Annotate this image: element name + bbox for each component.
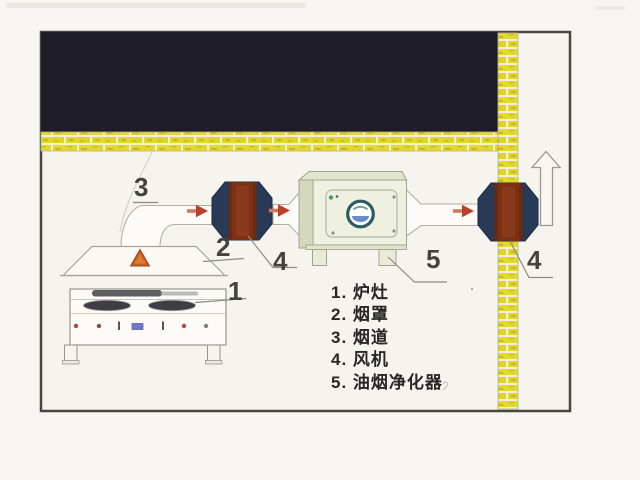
panel-screw <box>336 195 339 198</box>
purifier-base <box>306 245 407 250</box>
legend-item-hood: 2. 烟罩 <box>331 304 443 326</box>
stove-leg <box>65 345 78 362</box>
callout-number-duct: 3 <box>134 174 148 200</box>
brick-strip <box>41 132 498 151</box>
stove-burner <box>149 300 196 310</box>
callout-number-purifier: 5 <box>426 246 440 272</box>
callout-number-fan-right: 4 <box>527 247 541 273</box>
legend-item-fan: 4. 风机 <box>331 349 443 371</box>
scan-page: 3 2 1 4 4 5 1. 炉灶 2. 烟罩 3. 烟道 4. 风机 5. 油… <box>0 0 640 480</box>
stove-knob <box>74 324 78 328</box>
stove-knob <box>182 324 186 328</box>
stove-foot <box>206 361 223 365</box>
legend-item-stove: 1. 炉灶 <box>331 282 443 304</box>
stove-foot <box>63 361 80 365</box>
ceiling <box>41 32 498 132</box>
fan-core-light <box>502 187 515 237</box>
callout-number-hood: 2 <box>216 234 230 260</box>
stove-switch <box>162 322 164 331</box>
scan-smudge <box>6 3 306 8</box>
purifier-side <box>299 180 313 248</box>
brand-emblem-icon <box>348 201 374 227</box>
scan-speck <box>471 288 473 290</box>
exhaust-fan-right <box>478 183 538 241</box>
indicator-light-icon <box>329 195 333 199</box>
stove-body <box>70 289 226 345</box>
callout-number-stove: 1 <box>228 278 242 304</box>
panel-screw <box>392 195 395 198</box>
legend: 1. 炉灶 2. 烟罩 3. 烟道 4. 风机 5. 油烟净化器 <box>331 282 443 394</box>
callout-number-fan-left: 4 <box>273 248 287 274</box>
fan-core-shade <box>495 183 499 241</box>
legend-item-purifier: 5. 油烟净化器 <box>331 372 443 394</box>
stove-knob <box>204 324 208 328</box>
stove-top-smudge <box>92 290 162 297</box>
purifier-leg <box>379 250 396 266</box>
stove-leg <box>208 345 221 362</box>
purifier-top <box>299 172 407 181</box>
fan-core-shade <box>519 183 523 241</box>
stove-knob <box>97 324 101 328</box>
stove-burner <box>84 300 131 310</box>
scan-smudge <box>596 6 626 10</box>
panel-screw <box>392 229 395 232</box>
fan-core-shade <box>253 182 257 240</box>
stove-switch <box>118 322 120 331</box>
fan-core-light <box>236 186 249 236</box>
purifier-leg <box>313 250 327 266</box>
panel-screw <box>331 231 334 234</box>
system-diagram <box>0 0 640 480</box>
legend-item-duct: 3. 烟道 <box>331 327 443 349</box>
stove-display <box>132 324 143 330</box>
stove-top-smudge <box>160 292 198 296</box>
